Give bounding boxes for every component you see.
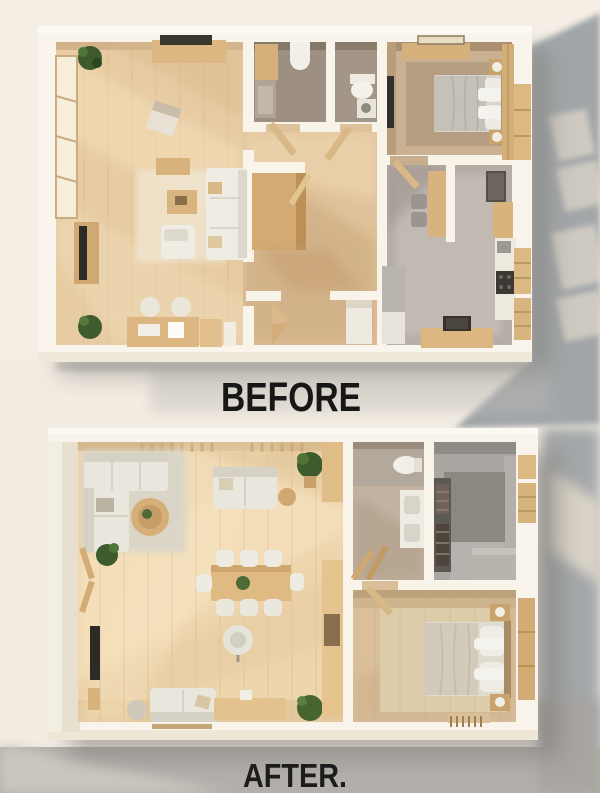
svg-text:BEFORE: BEFORE <box>221 374 361 420</box>
svg-text:AFTER.: AFTER. <box>243 757 347 793</box>
